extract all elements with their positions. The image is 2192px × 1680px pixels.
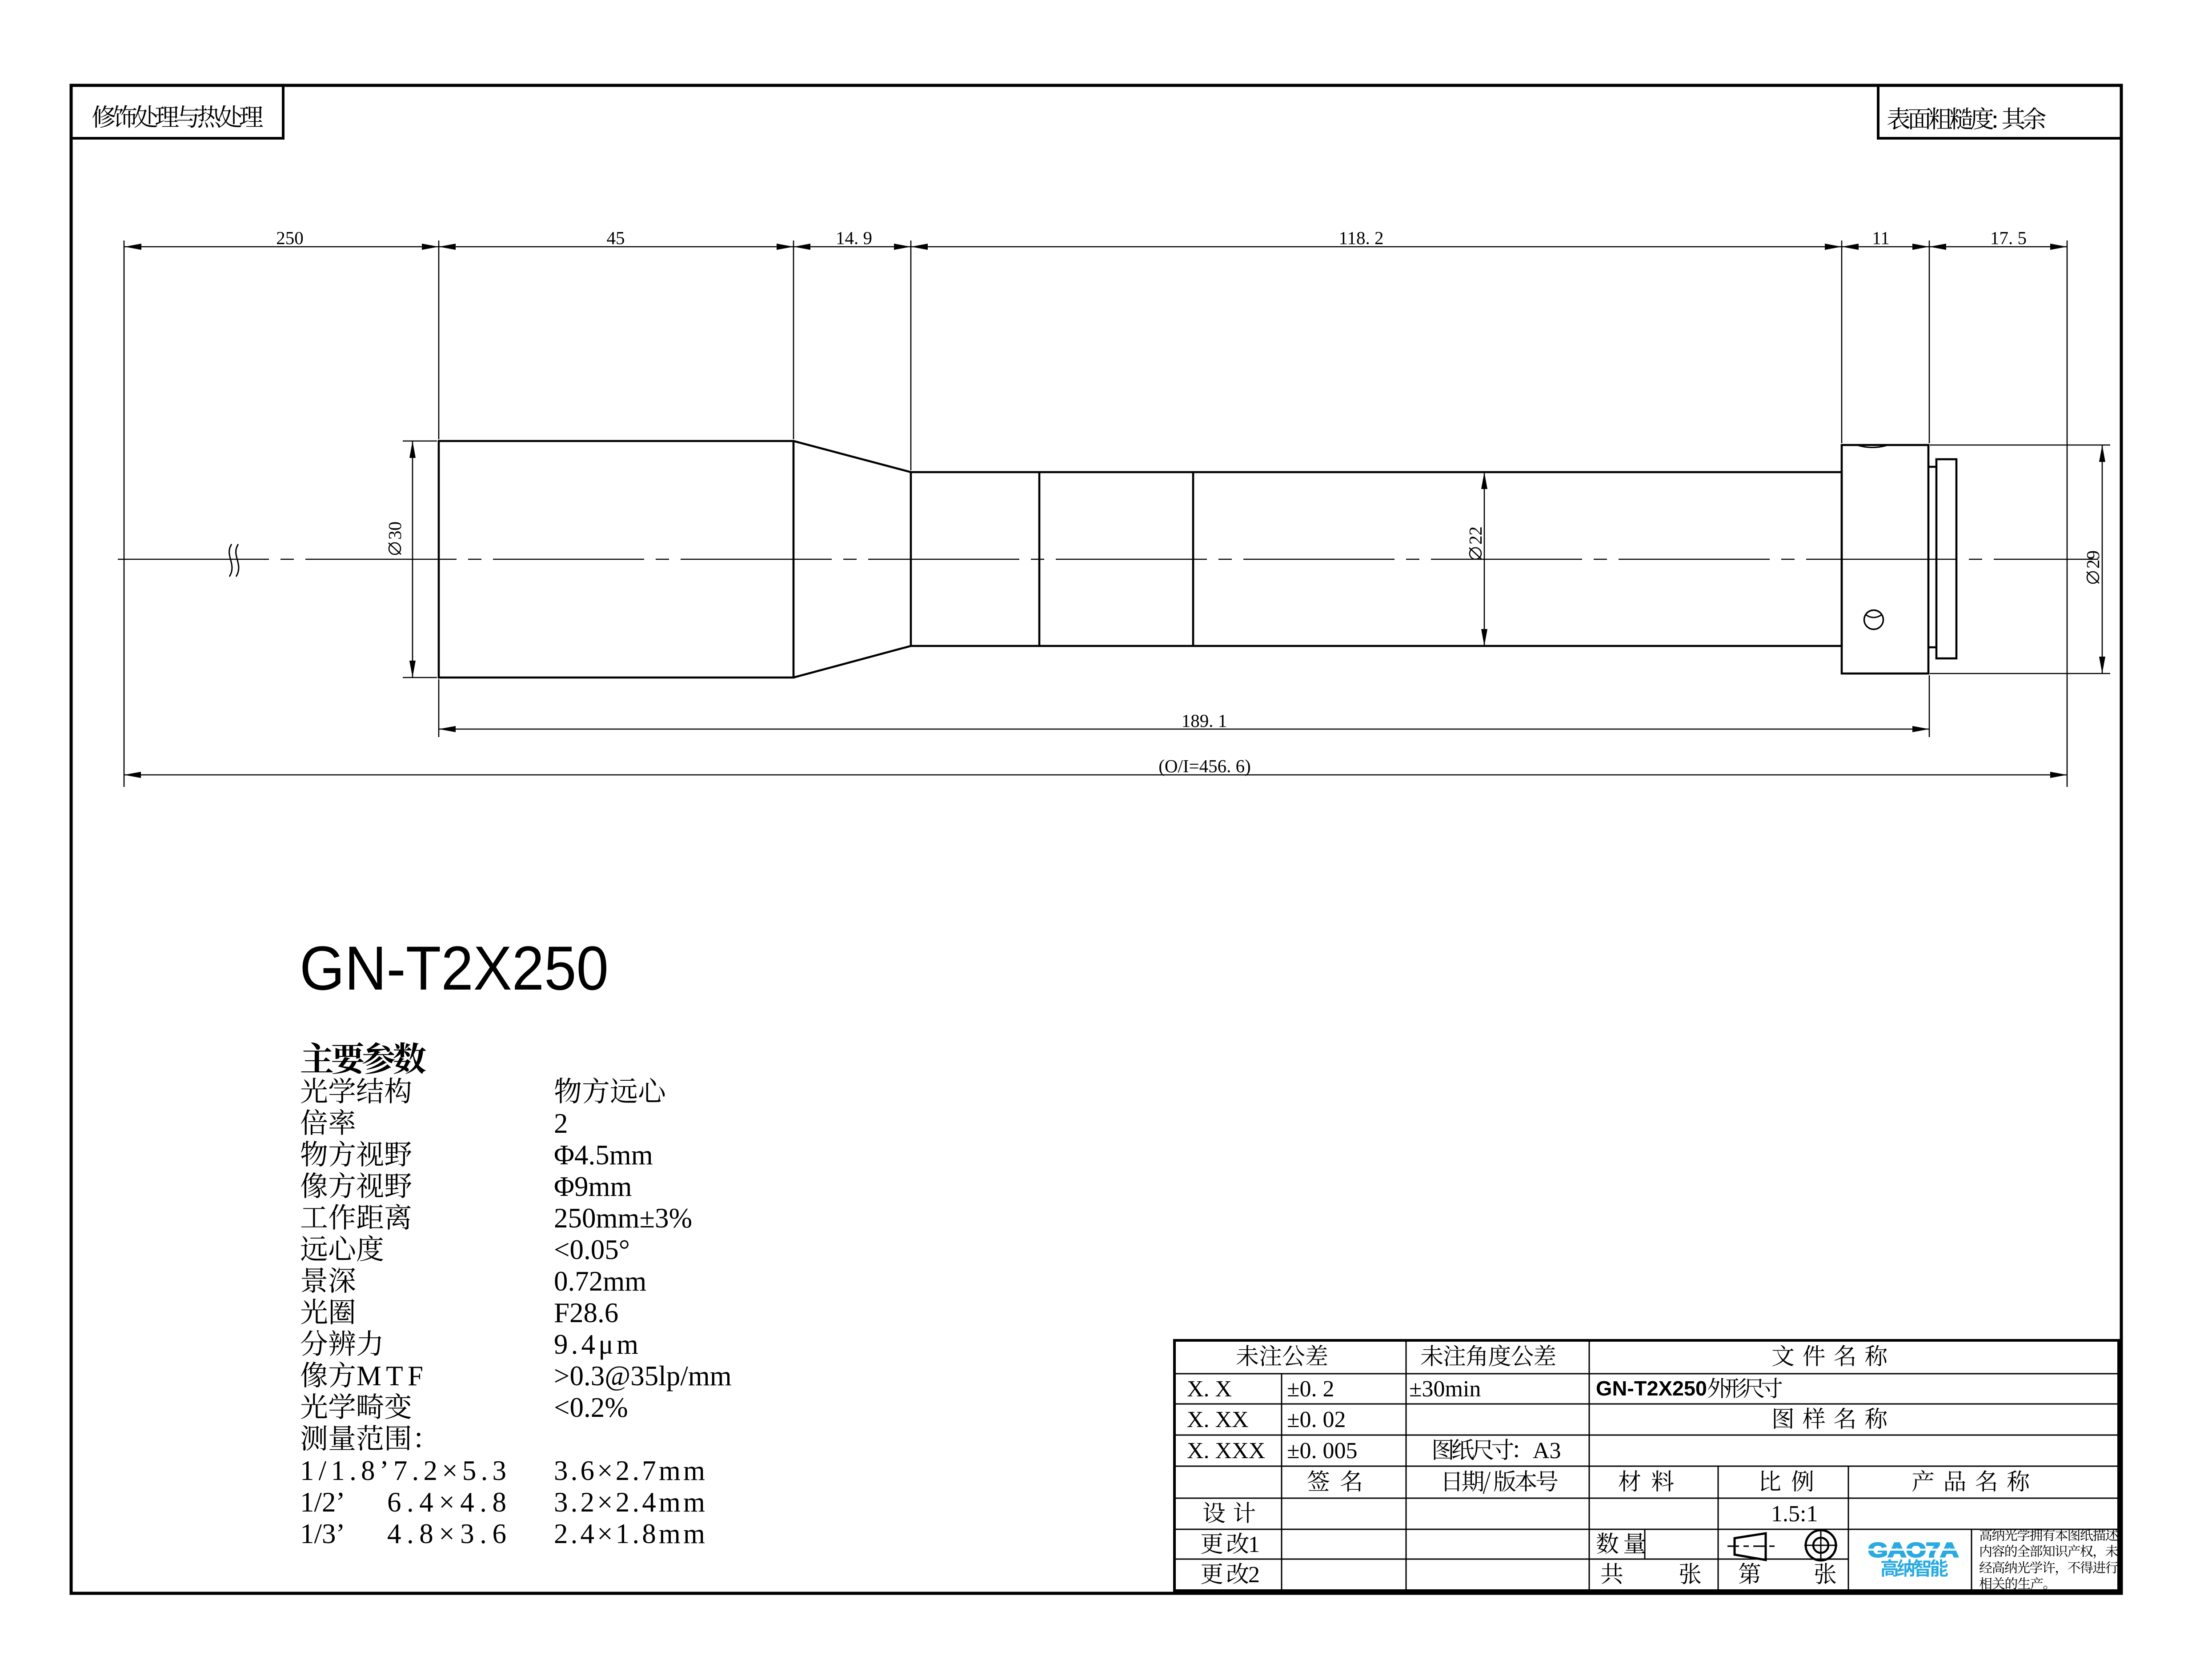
svg-text:X. X: X. X bbox=[1187, 1376, 1232, 1402]
svg-text:F28.6: F28.6 bbox=[554, 1297, 618, 1328]
svg-text:0.72mm: 0.72mm bbox=[554, 1266, 646, 1297]
svg-text:1: 1 bbox=[1248, 1532, 1260, 1557]
svg-text:11: 11 bbox=[1872, 228, 1889, 248]
svg-text:±0. 005: ±0. 005 bbox=[1287, 1438, 1358, 1463]
svg-text:189. 1: 189. 1 bbox=[1182, 710, 1227, 731]
svg-text:1/2’: 1/2’ bbox=[300, 1487, 345, 1518]
svg-text:±0. 2: ±0. 2 bbox=[1287, 1376, 1334, 1402]
svg-text:17. 5: 17. 5 bbox=[1990, 228, 2027, 248]
svg-text:X. XX: X. XX bbox=[1187, 1407, 1249, 1432]
svg-text:±0. 02: ±0. 02 bbox=[1287, 1407, 1346, 1432]
svg-text:1/1.8’7.2×5.3: 1/1.8’7.2×5.3 bbox=[300, 1455, 506, 1486]
svg-text:45: 45 bbox=[607, 228, 625, 248]
svg-text:A3: A3 bbox=[1533, 1438, 1561, 1463]
svg-text:Φ9mm: Φ9mm bbox=[554, 1171, 632, 1202]
svg-text:Φ4.5mm: Φ4.5mm bbox=[554, 1139, 653, 1171]
svg-text:GN-T2X250: GN-T2X250 bbox=[1596, 1377, 1707, 1400]
svg-text:X. XXX: X. XXX bbox=[1187, 1438, 1265, 1463]
svg-text:29: 29 bbox=[2083, 550, 2103, 569]
svg-text:1/3’: 1/3’ bbox=[300, 1518, 345, 1549]
svg-text:>0.3@35lp/mm: >0.3@35lp/mm bbox=[554, 1360, 732, 1391]
svg-text:MTF: MTF bbox=[357, 1360, 423, 1391]
svg-text:1.5:1: 1.5:1 bbox=[1771, 1501, 1818, 1527]
svg-text:14. 9: 14. 9 bbox=[836, 228, 872, 248]
svg-text:30: 30 bbox=[385, 521, 405, 540]
svg-text:250: 250 bbox=[276, 228, 304, 248]
svg-text:<0.05°: <0.05° bbox=[554, 1234, 630, 1265]
svg-text:GN-T2X250: GN-T2X250 bbox=[300, 933, 609, 1003]
svg-text:<0.2%: <0.2% bbox=[554, 1392, 628, 1423]
svg-text:±30min: ±30min bbox=[1409, 1376, 1481, 1402]
svg-text:2: 2 bbox=[554, 1108, 568, 1139]
svg-text:118. 2: 118. 2 bbox=[1339, 228, 1384, 248]
svg-text:22: 22 bbox=[1465, 526, 1486, 545]
svg-text:250mm±3%: 250mm±3% bbox=[554, 1203, 692, 1234]
svg-text:(O/I=456. 6): (O/I=456. 6) bbox=[1158, 756, 1251, 776]
svg-text:2: 2 bbox=[1248, 1562, 1260, 1588]
